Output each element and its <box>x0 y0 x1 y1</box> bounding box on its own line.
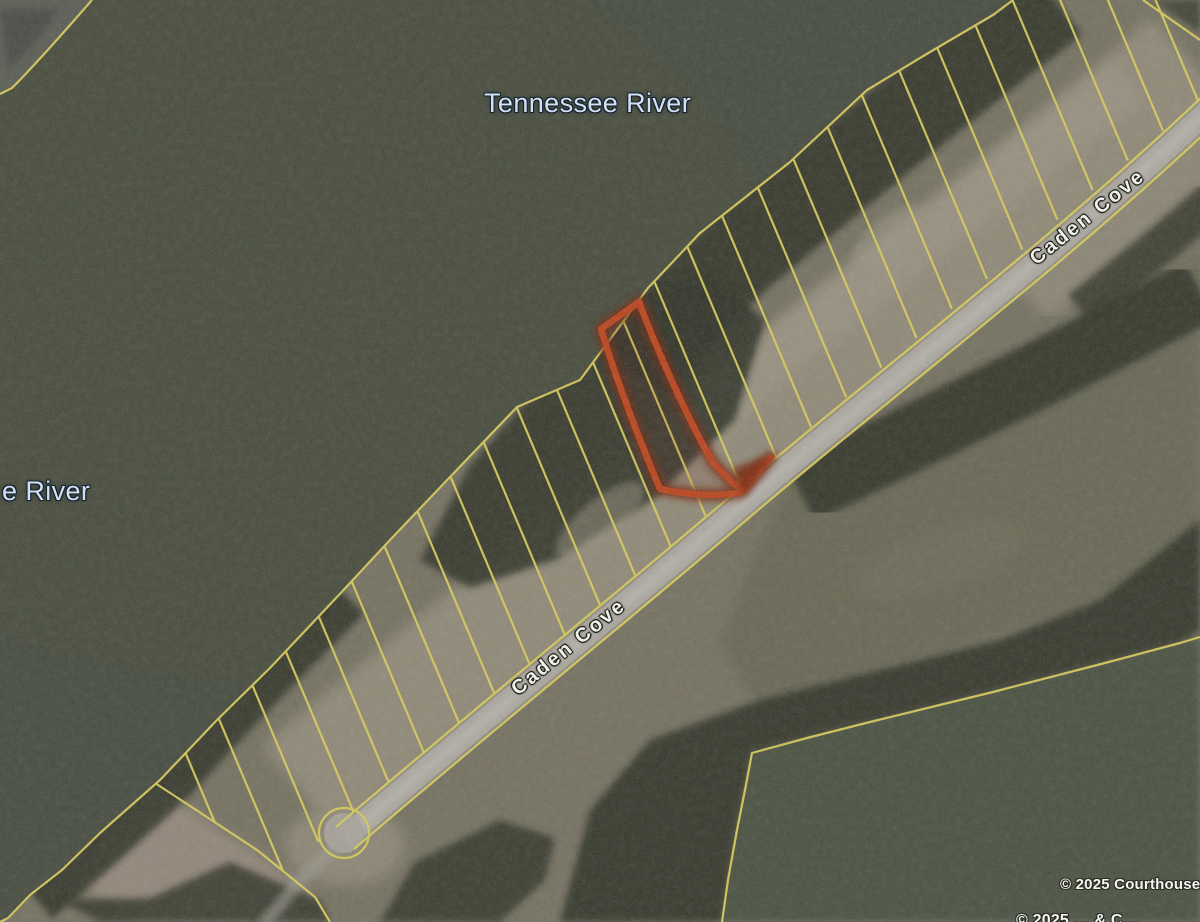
satellite-map[interactable] <box>0 0 1200 922</box>
scan-grain-coarse <box>0 0 1200 922</box>
map-viewport[interactable]: Tennessee River e River Caden Cove Caden… <box>0 0 1200 922</box>
